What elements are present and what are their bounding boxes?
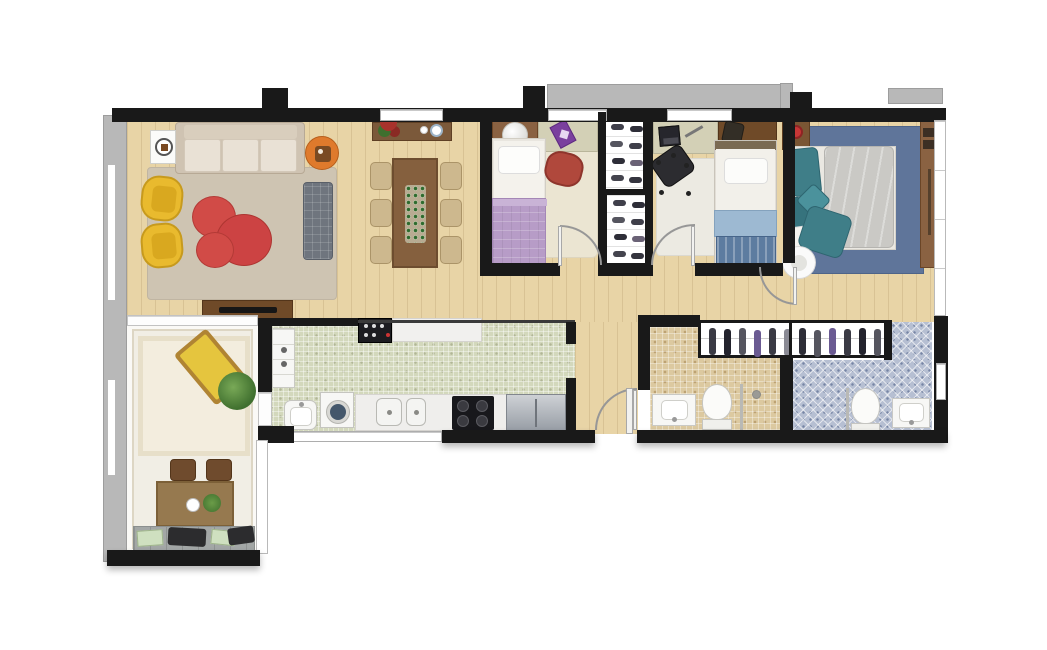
notebook-mark — [559, 129, 569, 139]
entry-door — [633, 390, 637, 430]
cabinet-knob — [281, 347, 287, 353]
tray-cup — [318, 149, 323, 154]
bathroom1-sliding-door — [626, 388, 633, 434]
dining-window — [380, 109, 443, 121]
bed2-pillow — [724, 158, 768, 184]
gray-quilted-bench — [303, 182, 333, 260]
bench-cushion-black — [227, 525, 255, 545]
walk-in-closet — [698, 320, 888, 358]
sofa-cushion — [260, 139, 297, 172]
sink-basin-left — [376, 398, 402, 426]
terrace-table — [156, 481, 234, 527]
burner — [457, 400, 469, 412]
top-exterior-wall — [112, 108, 946, 122]
faucet — [909, 420, 914, 425]
burner — [476, 400, 488, 412]
left-facade-window-frame — [108, 165, 115, 300]
blanket-fold — [493, 199, 547, 206]
living-terrace-glass-door — [127, 315, 258, 326]
shoe-rack-lower — [604, 192, 648, 268]
top-bedroom-ledge — [547, 84, 792, 110]
bedroom2-door — [691, 226, 695, 266]
stone-bench — [133, 526, 255, 552]
kitchen-tall-cabinet — [272, 328, 295, 388]
terrace-plate — [186, 498, 200, 512]
master-window-wall — [934, 120, 946, 316]
shower-divider — [846, 388, 849, 434]
bath2-toilet-bowl — [851, 388, 880, 424]
dining-table — [392, 158, 438, 268]
oven-knob — [372, 324, 376, 328]
dining-chair — [370, 162, 392, 190]
bathroom-divider-wall — [780, 355, 793, 443]
oven-light — [386, 333, 390, 337]
closet-strip-divider — [884, 320, 892, 360]
living-bedroom1-wall — [480, 112, 492, 263]
shower-divider — [740, 384, 743, 430]
bathroom2-entry-strip — [890, 322, 932, 360]
bath1-toilet-tank — [702, 419, 732, 430]
bed1-blanket — [492, 198, 546, 268]
hanging-clothes — [709, 328, 716, 355]
drain — [387, 410, 392, 415]
burner — [476, 415, 488, 427]
bathroom1-left-wall-upper — [638, 315, 650, 390]
terrace-plant — [203, 494, 221, 512]
terrace-right-wall — [256, 440, 268, 554]
tray — [315, 146, 331, 162]
dining-chair — [440, 199, 462, 227]
kitchen-right-wall-lower — [566, 378, 576, 432]
shoes — [611, 124, 624, 130]
laundry-basin — [290, 407, 312, 426]
kitchen-terrace-door — [258, 392, 272, 426]
bed2-blanket-fold — [714, 210, 777, 237]
drain — [414, 410, 419, 415]
bedroom2-window — [667, 109, 732, 121]
terrace-bottom-wall — [107, 550, 260, 566]
yellow-armchair — [139, 221, 185, 269]
top-right-ledge — [888, 88, 943, 104]
shoe-rack-upper — [602, 116, 646, 192]
bedroom2-master-wall — [783, 112, 795, 263]
bathroom1-left-wall-lower — [638, 430, 650, 443]
white-side-table — [150, 130, 176, 164]
kitchen-top-wall — [258, 318, 358, 326]
faucet — [672, 417, 677, 422]
chair-wheels — [656, 160, 661, 165]
hall-wall-under-closet — [598, 263, 653, 276]
terrace-chair — [170, 459, 196, 481]
kitchen-left-wall — [258, 322, 272, 392]
dining-chair — [440, 162, 462, 190]
washer-drum — [330, 404, 346, 420]
armchair-seat — [151, 232, 177, 260]
bath1-toilet-bowl — [702, 384, 732, 420]
faucet — [299, 402, 304, 407]
sofa — [175, 122, 305, 174]
oven-knob — [380, 324, 384, 328]
sofa-back-cushions — [184, 125, 297, 139]
left-facade-window-frame — [108, 380, 115, 475]
oven-knob — [372, 333, 376, 337]
cooktop — [452, 396, 494, 430]
cabinet-knob — [281, 361, 287, 367]
bedroom1-closet-wall — [598, 112, 606, 268]
oven-knob — [364, 324, 368, 328]
laptop — [658, 125, 681, 147]
bedroom1-door — [558, 226, 562, 266]
shoes — [613, 200, 626, 206]
red-pouf — [196, 232, 234, 268]
orange-side-table — [305, 136, 339, 170]
table-runner-plants — [405, 185, 426, 243]
bath1-vanity — [652, 394, 696, 426]
top-wall-column — [262, 88, 288, 108]
terrace-chair — [206, 459, 232, 481]
entry-shaft-column — [523, 86, 545, 110]
shower-drain — [752, 390, 761, 399]
burner — [457, 415, 469, 427]
laptop-keys — [663, 137, 678, 144]
closet-bedroom2-wall — [645, 112, 653, 268]
floor-plan — [0, 0, 1047, 650]
fridge — [506, 394, 566, 431]
kitchen-right-wall-upper — [566, 322, 576, 344]
dining-chair — [440, 236, 462, 264]
sofa-cushion — [184, 139, 221, 172]
record-player-center — [161, 144, 168, 151]
dining-chair — [370, 236, 392, 264]
washing-machine — [320, 392, 354, 428]
bench-cushion-black — [168, 527, 207, 547]
bathroom2-window — [936, 363, 946, 400]
bed1-pillow — [498, 146, 540, 174]
sink-basin-right — [406, 398, 426, 426]
closet-rail — [701, 338, 885, 339]
hall-wall-under-bed1 — [480, 263, 560, 276]
laundry-window — [292, 431, 442, 442]
closet-divider — [789, 323, 792, 355]
oven-knob — [364, 333, 368, 337]
wardrobe-handle — [928, 169, 931, 235]
tv — [219, 307, 277, 313]
master-door — [793, 267, 797, 305]
decor-plate — [420, 126, 428, 134]
decor-plate — [430, 124, 443, 137]
bench-cushion-green — [136, 529, 163, 547]
armchair-seat — [151, 185, 178, 213]
fridge-handle — [535, 399, 537, 427]
left-facade-ledge — [103, 115, 127, 562]
potted-plant — [218, 372, 256, 410]
dining-chair — [370, 199, 392, 227]
master-top-column — [790, 92, 812, 110]
sofa-cushion — [222, 139, 259, 172]
bath2-vanity — [892, 398, 930, 428]
